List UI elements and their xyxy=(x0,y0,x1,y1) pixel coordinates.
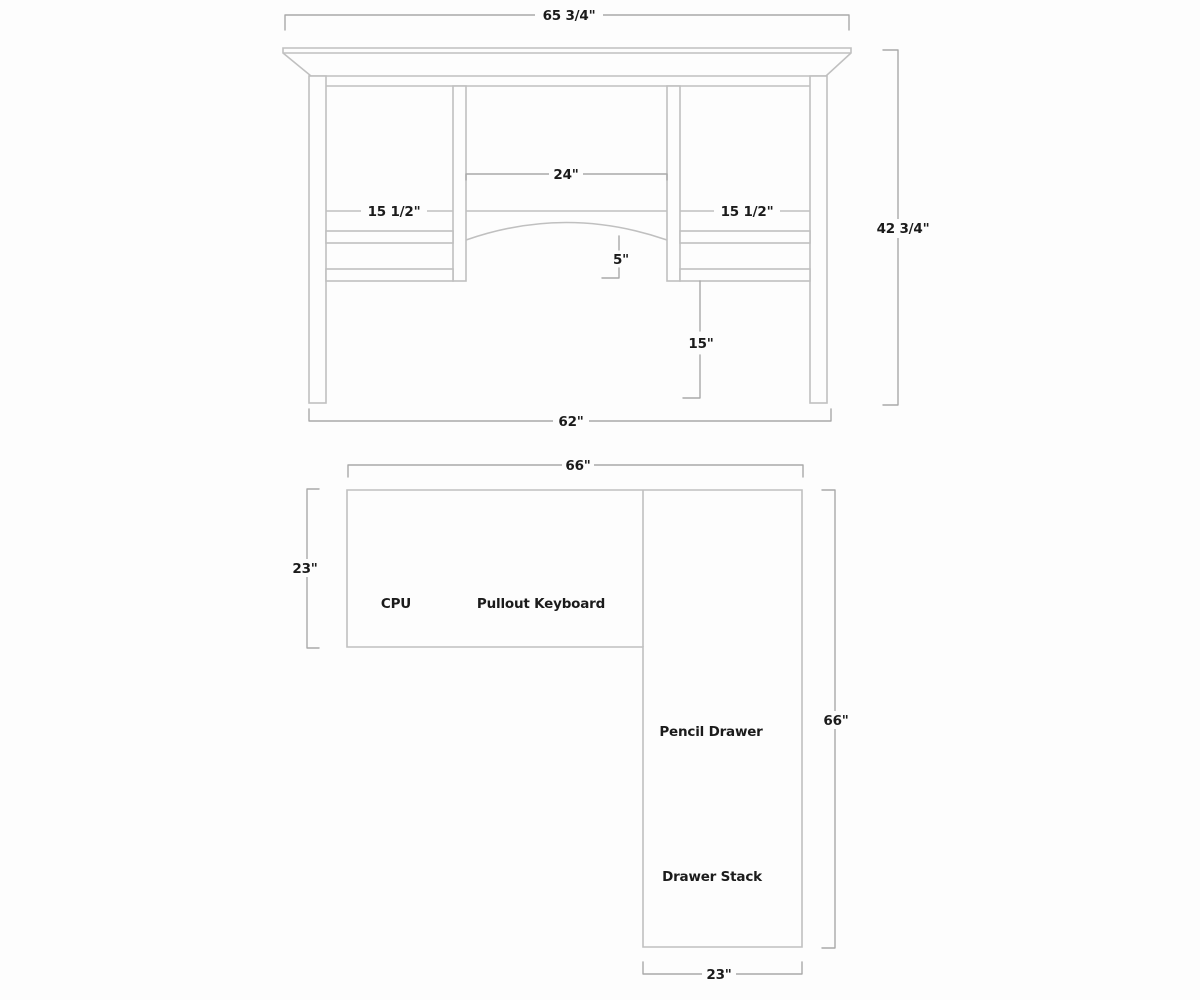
dim-right-opening-label: 15 1/2" xyxy=(721,204,774,220)
technical-drawing-page: 65 3/4" 24" 15 1/2" 15 1/2" 5" 15" 62" 4… xyxy=(0,0,1200,1000)
right-drawer-rail-lower xyxy=(680,269,810,281)
pencil-drawer-label: Pencil Drawer xyxy=(659,724,763,740)
left-leg xyxy=(309,76,326,403)
dim-return-length-label: 66" xyxy=(823,713,848,729)
dim-desk-length-label: 66" xyxy=(565,458,590,474)
cpu-label: CPU xyxy=(381,596,411,612)
dim-leg-span-label: 62" xyxy=(558,414,583,430)
dim-center-opening-label: 24" xyxy=(553,167,578,183)
dim-overall-width-label: 65 3/4" xyxy=(543,8,596,24)
dim-desk-depth-label: 23" xyxy=(292,561,317,577)
right-drawer-rail-upper xyxy=(680,231,810,243)
pullout-keyboard-label: Pullout Keyboard xyxy=(477,596,605,612)
dim-arch-rise-label: 5" xyxy=(613,252,629,268)
right-leg xyxy=(810,76,827,403)
left-divider xyxy=(453,86,466,281)
knee-arch xyxy=(466,223,667,241)
left-drawer-rail-upper xyxy=(326,231,453,243)
dim-left-opening-label: 15 1/2" xyxy=(368,204,421,220)
right-divider xyxy=(667,86,680,281)
left-drawer-rail-lower xyxy=(326,269,453,281)
dim-knee-clearance-label: 15" xyxy=(688,336,713,352)
plan-view: 66" 23" 66" 23" CPU Pullout Keyboard Pen… xyxy=(288,456,852,983)
dim-return-depth-label: 23" xyxy=(706,967,731,983)
front-elevation-view: 65 3/4" 24" 15 1/2" 15 1/2" 5" 15" 62" 4… xyxy=(283,6,940,430)
drawer-stack-label: Drawer Stack xyxy=(662,869,763,885)
desk-drawing: 65 3/4" 24" 15 1/2" 15 1/2" 5" 15" 62" 4… xyxy=(0,0,1200,1000)
dim-overall-height-label: 42 3/4" xyxy=(877,221,930,237)
